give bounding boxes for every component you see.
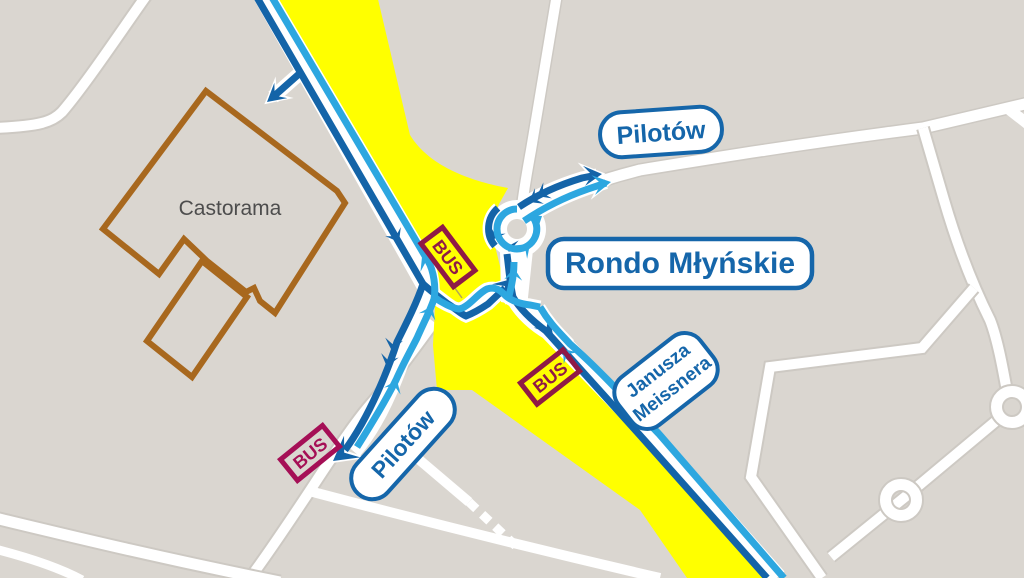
svg-text:Castorama: Castorama	[179, 197, 282, 220]
svg-text:Rondo Młyńskie: Rondo Młyńskie	[565, 247, 795, 280]
